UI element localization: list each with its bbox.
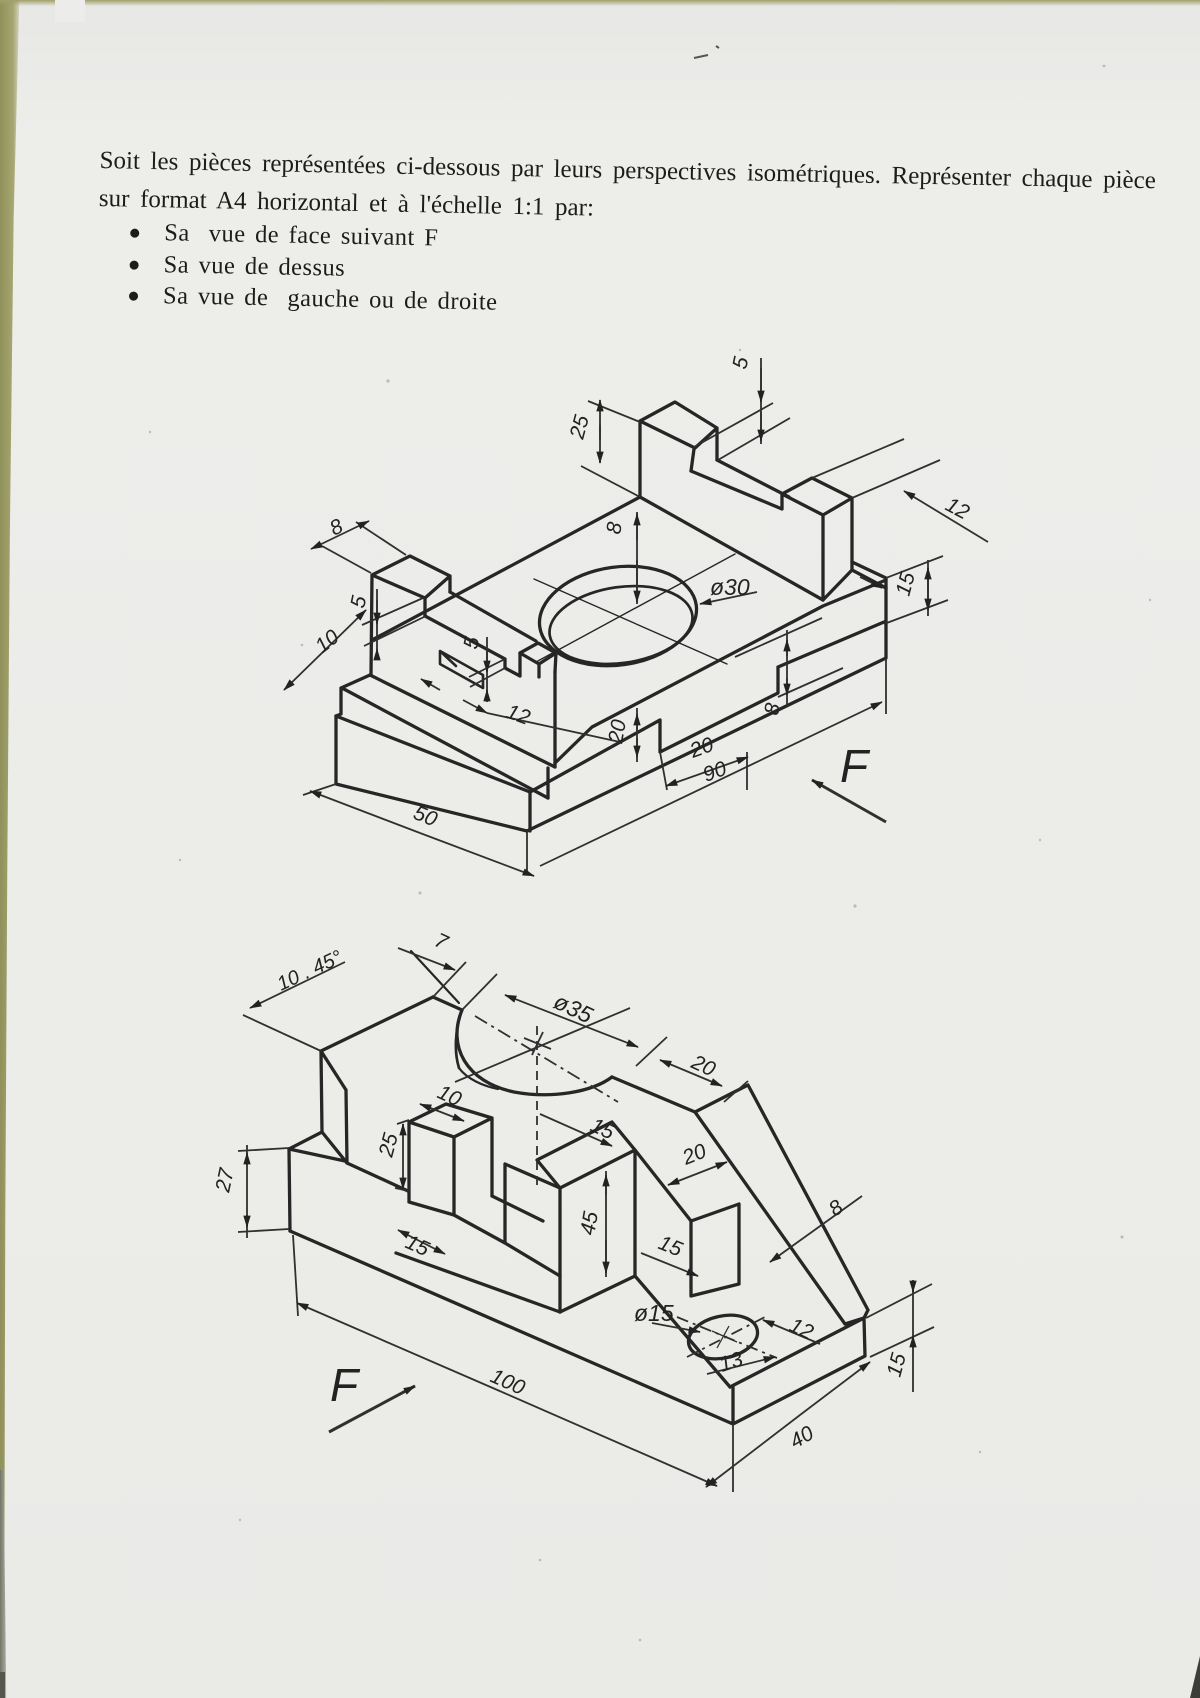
svg-text:45: 45 <box>576 1210 603 1237</box>
svg-text:F: F <box>330 1359 361 1411</box>
svg-text:20: 20 <box>687 1050 719 1081</box>
svg-text:5: 5 <box>728 355 753 372</box>
svg-text:27: 27 <box>211 1165 239 1195</box>
svg-text:ø15: ø15 <box>634 1300 674 1326</box>
svg-text:40: 40 <box>786 1422 818 1454</box>
svg-text:8: 8 <box>326 515 347 541</box>
svg-text:F: F <box>840 740 871 792</box>
svg-text:20: 20 <box>678 1139 709 1170</box>
svg-text:ø30: ø30 <box>710 574 750 600</box>
svg-text:10: 10 <box>311 625 344 658</box>
svg-text:15: 15 <box>883 1350 911 1379</box>
svg-text:5: 5 <box>346 594 371 611</box>
svg-text:ø35: ø35 <box>550 988 597 1028</box>
svg-text:20: 20 <box>604 718 631 746</box>
svg-text:5: 5 <box>459 635 484 652</box>
svg-text:50: 50 <box>410 801 441 831</box>
svg-text:90: 90 <box>700 757 730 787</box>
svg-text:100: 100 <box>487 1365 529 1400</box>
svg-text:12: 12 <box>942 493 974 524</box>
svg-text:12: 12 <box>503 700 533 730</box>
svg-text:15: 15 <box>892 569 920 598</box>
svg-text:25: 25 <box>374 1130 403 1160</box>
svg-text:15: 15 <box>587 1114 618 1145</box>
svg-text:25: 25 <box>565 412 594 442</box>
svg-text:7: 7 <box>431 929 453 955</box>
svg-text:8: 8 <box>602 520 627 536</box>
svg-text:8: 8 <box>760 701 785 717</box>
svg-text:15: 15 <box>655 1231 686 1261</box>
svg-text:10 . 45°: 10 . 45° <box>274 946 346 995</box>
